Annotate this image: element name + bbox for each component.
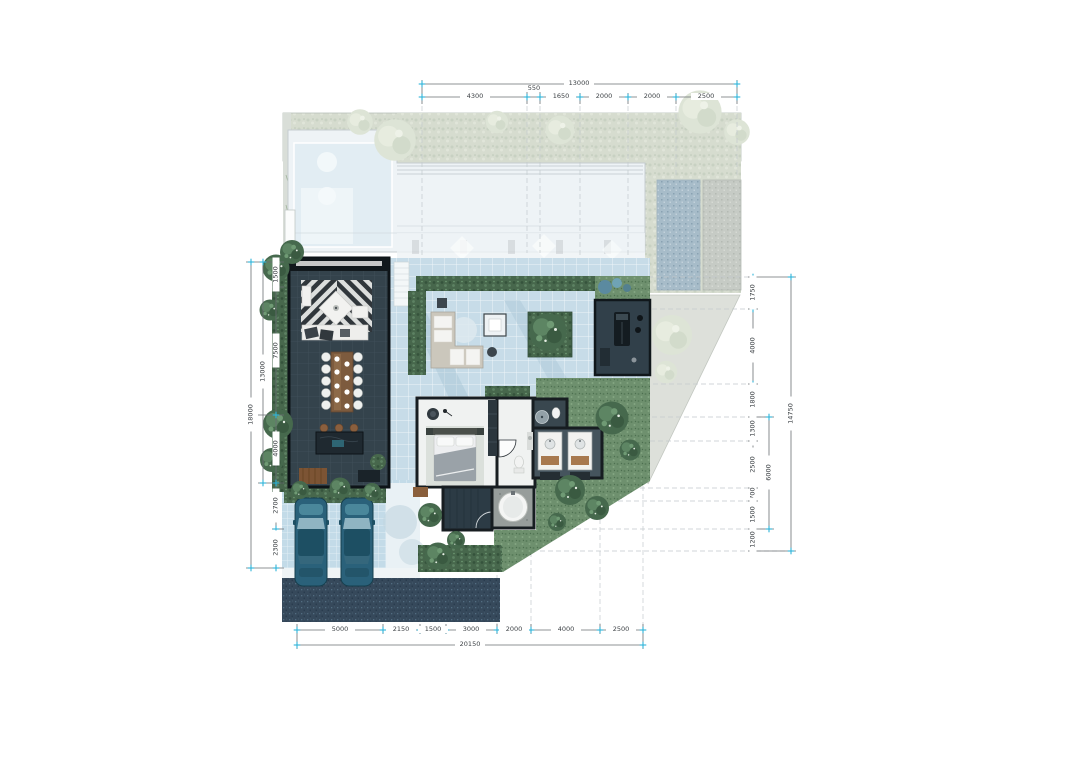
dim-left-seg-3: 2700	[273, 489, 280, 523]
dim-right-seg-1: 4000	[750, 329, 757, 363]
dim-left-inner: 13000	[260, 355, 267, 389]
dim-top-seg-2: 1650	[546, 93, 576, 100]
dim-top-seg-3: 2000	[589, 93, 619, 100]
dim-bottom-seg-1: 2150	[386, 626, 416, 633]
dim-bottom-seg-4: 2000	[499, 626, 529, 633]
dim-bottom-seg-6: 2500	[606, 626, 636, 633]
dim-right-seg-0: 1750	[750, 276, 757, 310]
faded-veranda	[397, 233, 645, 260]
water-feature-panel	[657, 180, 700, 290]
planter-island	[528, 312, 572, 357]
dim-top-total: 13000	[564, 80, 594, 87]
car-left	[293, 498, 329, 586]
dim-bottom-total: 20150	[455, 641, 485, 648]
dim-top-seg-5: 2500	[691, 93, 721, 100]
dim-right-seg-3: 1300	[750, 412, 757, 446]
floor-plan-drawing	[0, 0, 1080, 764]
gravel-panel	[703, 180, 741, 290]
dim-right-inner: 6000	[766, 456, 773, 490]
dim-top-seg-4: 2000	[637, 93, 667, 100]
gym-room	[595, 276, 650, 375]
dim-left-seg-0: 1500	[273, 258, 280, 292]
dim-bottom-seg-3: 3000	[456, 626, 486, 633]
floor-plan-page: 13000 4300 550 1650 2000 2000 2500 5000 …	[0, 0, 1080, 764]
dim-right-outer: 14750	[788, 397, 795, 431]
living-dining-pavilion	[289, 258, 389, 487]
dim-right-seg-7: 1200	[750, 523, 757, 557]
dim-bottom-seg-0: 5000	[325, 626, 355, 633]
dim-left-seg-2: 4000	[273, 432, 280, 466]
paved-triangle-terrace	[645, 295, 740, 484]
dim-left-seg-1: 7500	[273, 334, 280, 368]
dim-bottom-seg-2: 1500	[418, 626, 448, 633]
dim-left-seg-4: 2300	[273, 531, 280, 565]
dim-top-seg-0: 4300	[460, 93, 490, 100]
dim-left-outer: 18000	[248, 398, 255, 432]
dim-bottom-seg-5: 4000	[551, 626, 581, 633]
car-right	[339, 498, 375, 586]
dim-top-seg-1: 550	[519, 85, 549, 92]
